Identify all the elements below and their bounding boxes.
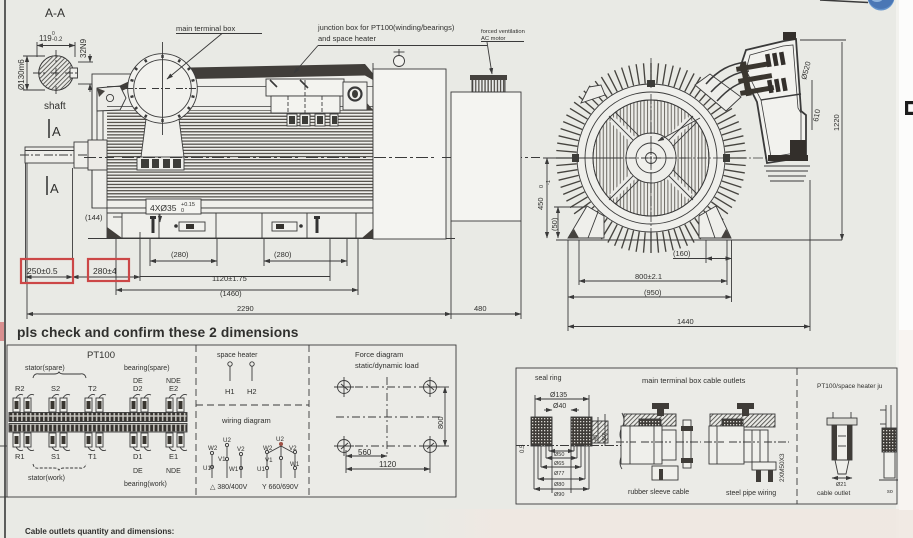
svg-text:32N9: 32N9: [79, 38, 88, 58]
svg-text:D2: D2: [133, 384, 143, 393]
svg-text:0.5: 0.5: [520, 444, 526, 453]
svg-text:Cable outlets quantity and dim: Cable outlets quantity and dimensions:: [25, 527, 174, 536]
svg-text:steel pipe wiring: steel pipe wiring: [726, 490, 776, 497]
svg-text:A: A: [52, 124, 61, 139]
svg-text:stator(spare): stator(spare): [25, 365, 65, 372]
svg-text:(280): (280): [171, 250, 189, 259]
svg-text:R2: R2: [15, 384, 25, 393]
svg-text:Ø40: Ø40: [553, 403, 566, 410]
svg-text:junction box for PT100(winding: junction box for PT100(winding/bearings): [317, 23, 455, 32]
svg-text:cable outlet: cable outlet: [817, 490, 850, 497]
svg-text:so: so: [887, 489, 893, 495]
svg-text:119: 119: [39, 34, 52, 43]
svg-text:-1: -1: [546, 180, 552, 185]
svg-text:Ø21: Ø21: [836, 482, 846, 488]
svg-text:Y 660/690V: Y 660/690V: [262, 484, 299, 491]
svg-text:bearing(work): bearing(work): [124, 481, 167, 488]
svg-text:shaft: shaft: [44, 101, 66, 112]
svg-text:PT100: PT100: [87, 350, 115, 361]
svg-text:1440: 1440: [677, 317, 694, 326]
svg-text:V2: V2: [237, 446, 245, 453]
svg-text:Ø50: Ø50: [554, 452, 564, 458]
svg-text:E1: E1: [169, 452, 178, 461]
svg-text:U2: U2: [276, 436, 284, 443]
svg-text:Ø65: Ø65: [554, 461, 564, 467]
svg-text:forced ventilation: forced ventilation: [481, 29, 525, 35]
svg-text:0: 0: [539, 185, 545, 188]
svg-text:48: 48: [593, 435, 599, 441]
svg-text:W1: W1: [229, 466, 239, 473]
svg-text:250±0.5: 250±0.5: [27, 266, 58, 276]
svg-text:(280): (280): [274, 250, 292, 259]
svg-text:800: 800: [436, 416, 445, 429]
svg-text:A: A: [50, 181, 59, 196]
svg-text:Ø135: Ø135: [550, 392, 567, 399]
svg-text:DE: DE: [133, 468, 143, 475]
svg-text:space heater: space heater: [217, 352, 258, 359]
svg-text:2290: 2290: [237, 304, 254, 313]
svg-text:Ø90: Ø90: [554, 492, 564, 498]
svg-text:H2: H2: [247, 387, 257, 396]
svg-text:(50): (50): [602, 432, 608, 442]
svg-text:(950): (950): [644, 288, 662, 297]
svg-text:rubber sleeve cable: rubber sleeve cable: [628, 489, 689, 496]
svg-text:2XM50X3: 2XM50X3: [779, 453, 786, 482]
svg-text:S2: S2: [51, 384, 60, 393]
svg-text:0: 0: [52, 31, 55, 37]
svg-text:450: 450: [536, 197, 545, 210]
svg-text:1120: 1120: [379, 460, 397, 469]
svg-text:T1: T1: [88, 452, 97, 461]
svg-text:0: 0: [181, 208, 184, 214]
svg-text:V1: V1: [218, 456, 226, 463]
svg-text:main terminal box cable outlet: main terminal box cable outlets: [642, 376, 746, 385]
svg-text:A-A: A-A: [45, 6, 65, 20]
svg-text:seal ring: seal ring: [535, 375, 562, 382]
svg-text:pls check and confirm these 2: pls check and confirm these 2 dimensions: [17, 325, 299, 340]
svg-text:280±4: 280±4: [93, 266, 117, 276]
svg-text:main terminal box: main terminal box: [176, 24, 235, 33]
svg-text:stator(work): stator(work): [28, 475, 65, 482]
svg-text:480: 480: [474, 304, 487, 313]
svg-text:E2: E2: [169, 384, 178, 393]
svg-text:wiring diagram: wiring diagram: [221, 416, 271, 425]
svg-text:static/dynamic load: static/dynamic load: [355, 361, 419, 370]
svg-text:560: 560: [358, 448, 372, 457]
svg-text:NDE: NDE: [166, 468, 181, 475]
svg-text:R1: R1: [15, 452, 25, 461]
svg-text:800±2.1: 800±2.1: [635, 272, 662, 281]
svg-text:1220: 1220: [832, 114, 841, 131]
svg-text:H1: H1: [225, 387, 235, 396]
svg-text:S1: S1: [51, 452, 60, 461]
svg-text:1120±1.75: 1120±1.75: [212, 274, 247, 283]
svg-text:△ 380/400V: △ 380/400V: [210, 484, 248, 491]
svg-text:Ø130m6: Ø130m6: [17, 59, 26, 90]
svg-text:Force diagram: Force diagram: [355, 350, 403, 359]
svg-text:(144): (144): [85, 213, 103, 222]
svg-text:bearing(spare): bearing(spare): [124, 365, 170, 372]
svg-text:U2: U2: [223, 437, 231, 444]
svg-text:PT100/space heater ju: PT100/space heater ju: [817, 383, 883, 390]
svg-text:U1: U1: [257, 466, 265, 473]
svg-text:V1: V1: [265, 457, 273, 464]
svg-text:Ø77: Ø77: [554, 471, 564, 477]
svg-text:4XØ35: 4XØ35: [150, 203, 177, 213]
svg-text:T2: T2: [88, 384, 97, 393]
svg-text:-0.2: -0.2: [52, 37, 63, 43]
svg-text:(160): (160): [673, 249, 691, 258]
svg-text:(1460): (1460): [220, 289, 242, 298]
svg-text:W2: W2: [208, 445, 218, 452]
svg-text:Ø80: Ø80: [554, 482, 564, 488]
svg-text:D1: D1: [133, 452, 143, 461]
svg-text:and space heater: and space heater: [318, 34, 376, 43]
svg-text:(50): (50): [550, 217, 559, 231]
